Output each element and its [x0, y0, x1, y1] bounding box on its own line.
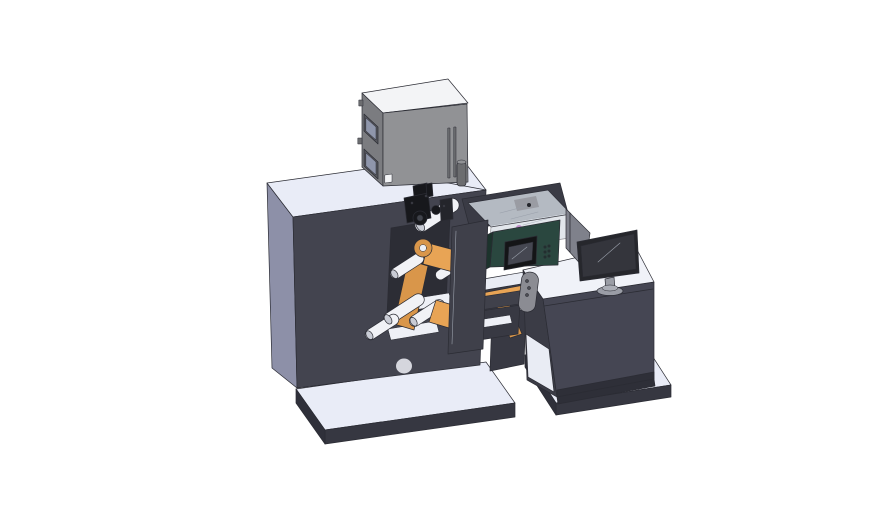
mech-arm-right — [440, 198, 453, 221]
cad-viewport — [0, 0, 888, 522]
glass-inner-detail — [527, 203, 531, 207]
machine-render — [0, 0, 888, 522]
cabinet-hinge-upper — [359, 100, 363, 106]
electrical-cabinet — [358, 79, 468, 186]
mech-arm-up — [426, 183, 433, 197]
cabinet-corner-plate — [385, 174, 392, 183]
mech-hub-inner — [417, 215, 423, 221]
monitor-base-top — [602, 285, 618, 291]
mech-gear — [432, 206, 441, 215]
cabinet-slot-2 — [454, 127, 456, 177]
filter-cylinder-cap — [457, 160, 466, 164]
label-roll-core — [420, 245, 427, 252]
front-panel-circle — [396, 359, 412, 374]
cabinet-slot-1 — [448, 128, 450, 178]
cabinet-hinge-lower — [358, 138, 362, 144]
filter-cylinder — [457, 162, 466, 186]
